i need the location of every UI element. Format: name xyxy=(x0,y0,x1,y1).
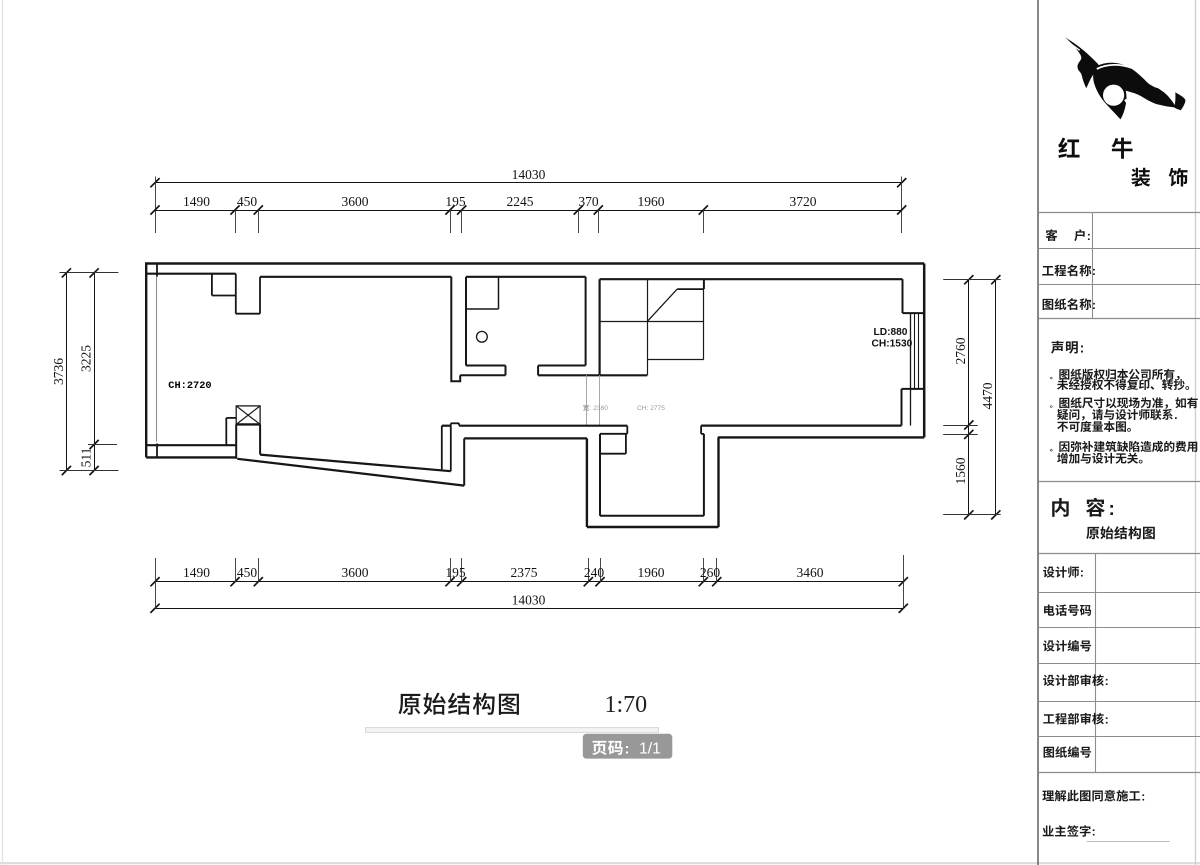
svg-text:CH:1530: CH:1530 xyxy=(872,339,913,350)
svg-text::: : xyxy=(1105,712,1109,726)
svg-text:240: 240 xyxy=(584,565,605,580)
svg-text::: : xyxy=(1092,298,1096,312)
svg-text:450: 450 xyxy=(237,565,258,580)
svg-text:2760: 2760 xyxy=(953,337,968,364)
svg-text::: : xyxy=(1087,229,1091,243)
svg-text:1490: 1490 xyxy=(183,194,210,209)
svg-text::: : xyxy=(1092,825,1096,839)
svg-text::: : xyxy=(1080,566,1084,580)
svg-text:3736: 3736 xyxy=(51,358,66,385)
svg-text:: 2360: : 2360 xyxy=(590,405,609,412)
svg-text:1:70: 1:70 xyxy=(605,692,648,718)
svg-text:3600: 3600 xyxy=(342,565,369,580)
svg-text:14030: 14030 xyxy=(512,593,546,608)
svg-text::: : xyxy=(1105,674,1109,688)
svg-text:CH: 2775: CH: 2775 xyxy=(637,405,665,412)
svg-text:14030: 14030 xyxy=(512,167,546,182)
svg-text:1960: 1960 xyxy=(638,194,665,209)
svg-text:3460: 3460 xyxy=(797,565,824,580)
svg-text:260: 260 xyxy=(700,565,721,580)
svg-text:LD:880: LD:880 xyxy=(874,327,908,338)
svg-text:195: 195 xyxy=(445,194,466,209)
svg-text:.: . xyxy=(1174,409,1177,422)
svg-text:511: 511 xyxy=(79,448,94,468)
svg-text:3720: 3720 xyxy=(790,194,817,209)
svg-text:2245: 2245 xyxy=(507,194,534,209)
svg-text::: : xyxy=(1092,264,1096,278)
svg-text:3600: 3600 xyxy=(342,194,369,209)
svg-text:2375: 2375 xyxy=(511,565,538,580)
svg-text:450: 450 xyxy=(237,194,258,209)
svg-text::: : xyxy=(1109,499,1115,520)
svg-text:1/1: 1/1 xyxy=(639,741,661,758)
svg-text:370: 370 xyxy=(578,194,599,209)
svg-text:4470: 4470 xyxy=(980,382,995,409)
svg-text:1490: 1490 xyxy=(183,565,210,580)
svg-text:1960: 1960 xyxy=(638,565,665,580)
svg-text:3225: 3225 xyxy=(79,345,94,372)
svg-text::: : xyxy=(625,740,630,757)
svg-text:195: 195 xyxy=(445,565,466,580)
svg-text:1560: 1560 xyxy=(953,457,968,484)
svg-text:CH:2720: CH:2720 xyxy=(168,380,211,392)
svg-text::: : xyxy=(1080,340,1085,355)
svg-text::: : xyxy=(1141,789,1145,803)
